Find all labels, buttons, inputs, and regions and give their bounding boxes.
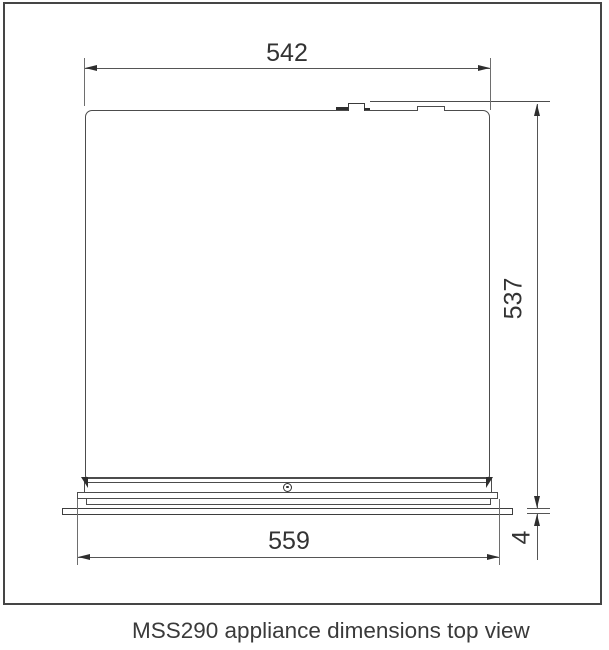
dim-542-arrow-right [478,65,490,71]
dim-559-label: 559 [259,529,319,554]
diagram-canvas: 542 537 4 559 MSS290 appliance dimension… [0,0,609,650]
dim-542-arrow-left [85,65,97,71]
dim-4-arrow-up [534,514,540,526]
dim-542-label: 542 [257,41,317,66]
top-tab-foot-left [336,107,348,110]
dim-559-line [78,557,499,558]
dim-542-line [85,68,490,69]
dim-537-arrow-bottom [534,496,540,508]
figure-caption: MSS290 appliance dimensions top view [132,617,530,644]
dim-537-label: 537 [502,268,527,328]
dim-537-arrow-top [534,104,540,116]
front-trim-bar [62,508,513,515]
front-inset-strip [86,498,491,506]
front-knob [283,483,292,492]
top-tab-detail [348,103,365,111]
dim-537-line [537,104,538,508]
dim-4-tick-top [527,508,550,509]
top-bump-detail [417,106,445,111]
front-knob-dot [286,486,289,489]
appliance-body-outline [85,110,490,478]
dim-542-extension-right [490,58,491,110]
top-cover-edge-line [370,101,550,102]
dim-559-arrow-right [487,554,499,560]
dim-559-arrow-left [78,554,90,560]
top-tab-foot-right [364,108,370,111]
dim-4-label: 4 [510,522,535,552]
